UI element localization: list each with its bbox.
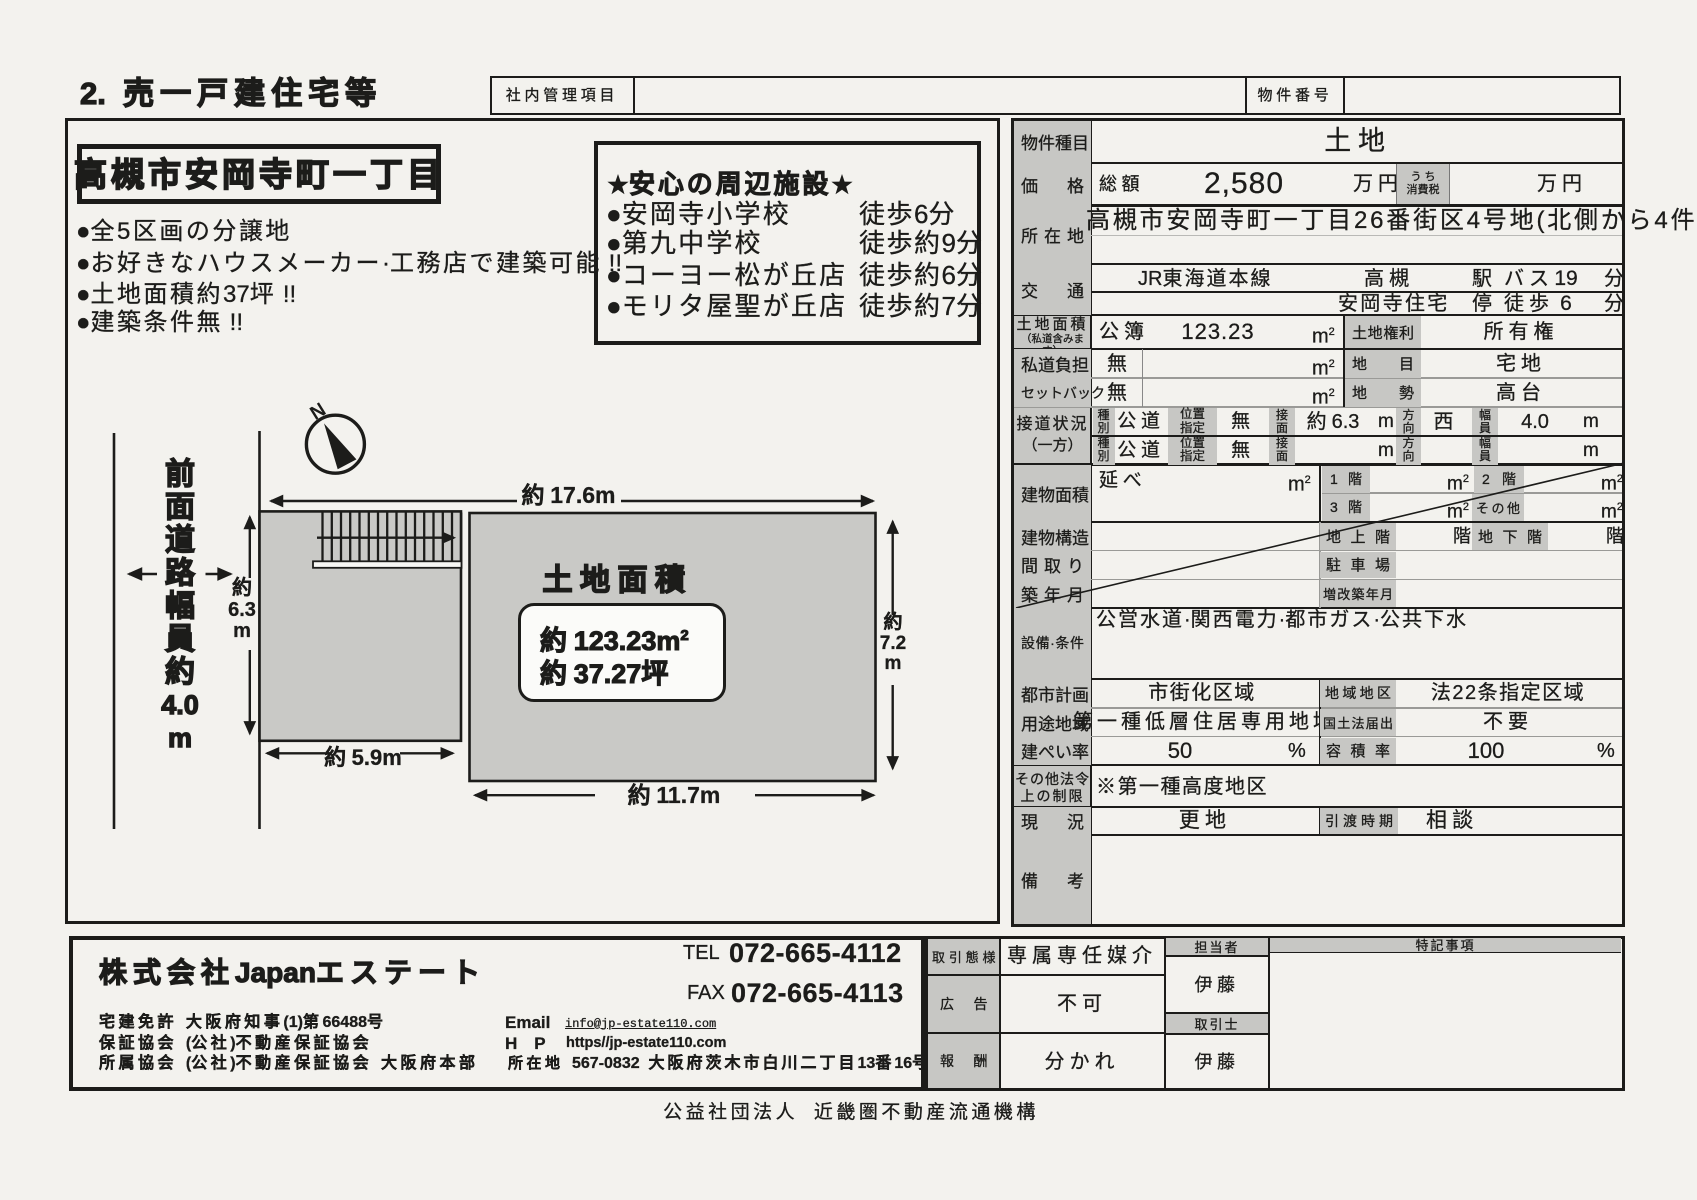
svg-text:N: N <box>306 399 330 425</box>
